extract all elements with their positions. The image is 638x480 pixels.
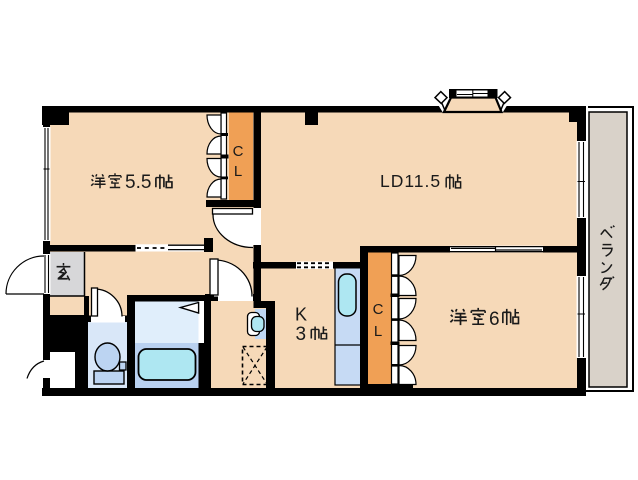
svg-text:5.5: 5.5 [125, 172, 151, 193]
svg-text:L: L [374, 323, 382, 340]
svg-text:6: 6 [489, 309, 500, 330]
svg-text:C: C [373, 301, 384, 318]
svg-text:L: L [234, 163, 242, 180]
svg-text:C: C [233, 143, 244, 160]
svg-text:3: 3 [296, 324, 307, 345]
svg-text:LD11.5: LD11.5 [380, 171, 441, 191]
svg-text:K: K [295, 305, 307, 325]
